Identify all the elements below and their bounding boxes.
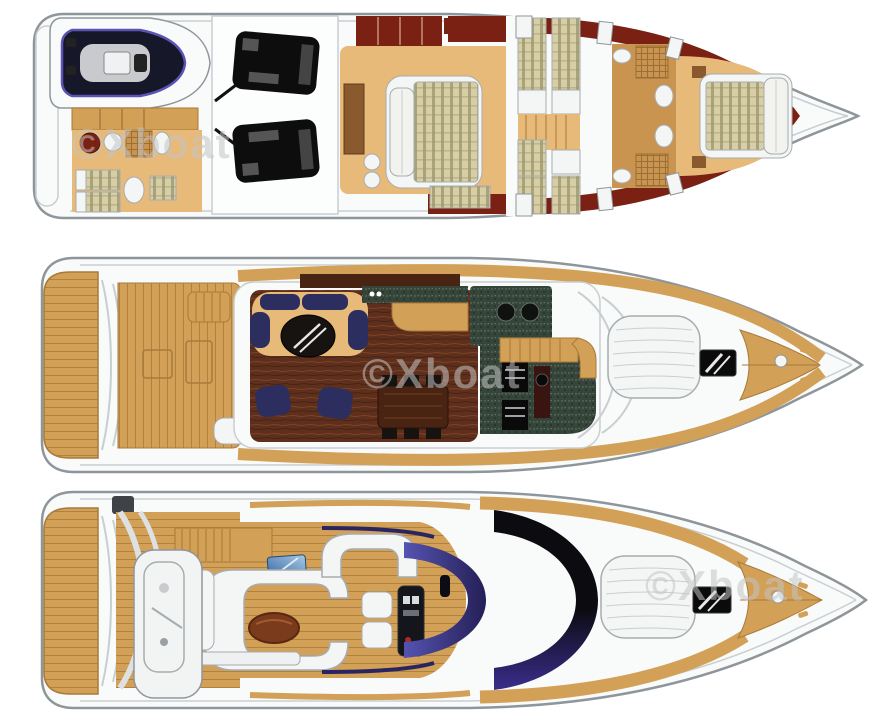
tender-garage — [50, 18, 210, 108]
watermark-text: ©Xboat — [362, 350, 522, 397]
sofa-cushion — [348, 310, 368, 350]
windlass — [775, 355, 787, 367]
shower — [636, 154, 668, 186]
master-sink — [364, 172, 380, 188]
tender-pad — [66, 38, 76, 47]
helm-seat — [362, 622, 392, 648]
windscreen-vent — [440, 575, 450, 597]
anchor-hatch — [700, 350, 736, 376]
sofa-cushion — [250, 312, 270, 348]
gate — [597, 21, 613, 44]
tender-console — [104, 52, 130, 74]
saloon-armchair — [316, 386, 354, 420]
watermark-text: ©Xboat — [645, 562, 805, 609]
bathrooms — [612, 44, 676, 188]
pillow — [552, 150, 580, 174]
instrument — [403, 610, 419, 616]
bulkhead — [506, 16, 516, 216]
instrument — [412, 596, 419, 604]
watermark-text: ©Xboat — [72, 120, 232, 167]
saloon-armchair — [254, 384, 292, 418]
pillow — [518, 90, 546, 114]
pillow — [552, 90, 580, 114]
master-closet — [344, 84, 364, 154]
helm-seat — [362, 592, 392, 618]
twin-bed-mattress — [552, 176, 580, 214]
crew-seat — [124, 177, 144, 203]
dining-chair — [382, 428, 397, 439]
glassware-icon — [370, 292, 375, 297]
swim-platform — [44, 508, 98, 694]
master-mattress — [414, 82, 478, 182]
vip-cabin — [676, 56, 792, 176]
flybridge-plan: ©Xboat — [42, 492, 866, 708]
yacht-deck-plans-page: ©Xboat — [0, 0, 876, 720]
sofa-cushion — [302, 294, 348, 310]
bath-sink — [613, 169, 631, 183]
tender-pad — [66, 66, 76, 75]
crew-settee — [150, 176, 176, 200]
master-cabinet — [448, 16, 506, 42]
sofa-cushion — [260, 294, 300, 310]
galley-sink — [497, 303, 515, 321]
vip-nightstand — [692, 156, 706, 168]
dining-chair — [426, 428, 441, 439]
instrument — [403, 596, 410, 604]
swim-platform — [44, 272, 98, 458]
toilet — [655, 125, 673, 147]
master-sofa — [430, 186, 490, 208]
gate — [516, 16, 532, 38]
gate — [516, 194, 532, 216]
glassware-icon — [377, 292, 382, 297]
shower — [636, 46, 668, 78]
crane-pivot — [160, 638, 168, 646]
twin-bed-mattress — [552, 18, 580, 90]
lower-deck-plan: ©Xboat — [34, 14, 858, 218]
gate — [597, 187, 613, 210]
galley-sink — [521, 303, 539, 321]
bath-sink — [613, 49, 631, 63]
saloon-sideboard — [300, 274, 460, 288]
pillow — [76, 192, 86, 212]
master-sink — [364, 154, 380, 170]
galley-oven — [502, 400, 528, 430]
yacht-deck-plans: ©Xboat — [0, 0, 876, 720]
crane-pivot — [159, 583, 169, 593]
port-engine — [232, 30, 321, 95]
engine-room — [212, 16, 338, 214]
master-wardrobe — [356, 16, 442, 46]
starboard-engine — [232, 118, 321, 183]
galley-bar — [392, 303, 468, 331]
cockpit-stairs — [188, 292, 230, 322]
pillow — [76, 170, 86, 190]
main-deck-plan: ©Xboat — [42, 258, 862, 472]
tender-seat — [134, 54, 147, 72]
toilet — [655, 85, 673, 107]
cooktop-burner — [536, 374, 548, 386]
vip-nightstand — [692, 66, 706, 78]
flybridge-table — [249, 613, 299, 643]
vip-mattress — [706, 82, 764, 150]
dining-chair — [404, 428, 419, 439]
